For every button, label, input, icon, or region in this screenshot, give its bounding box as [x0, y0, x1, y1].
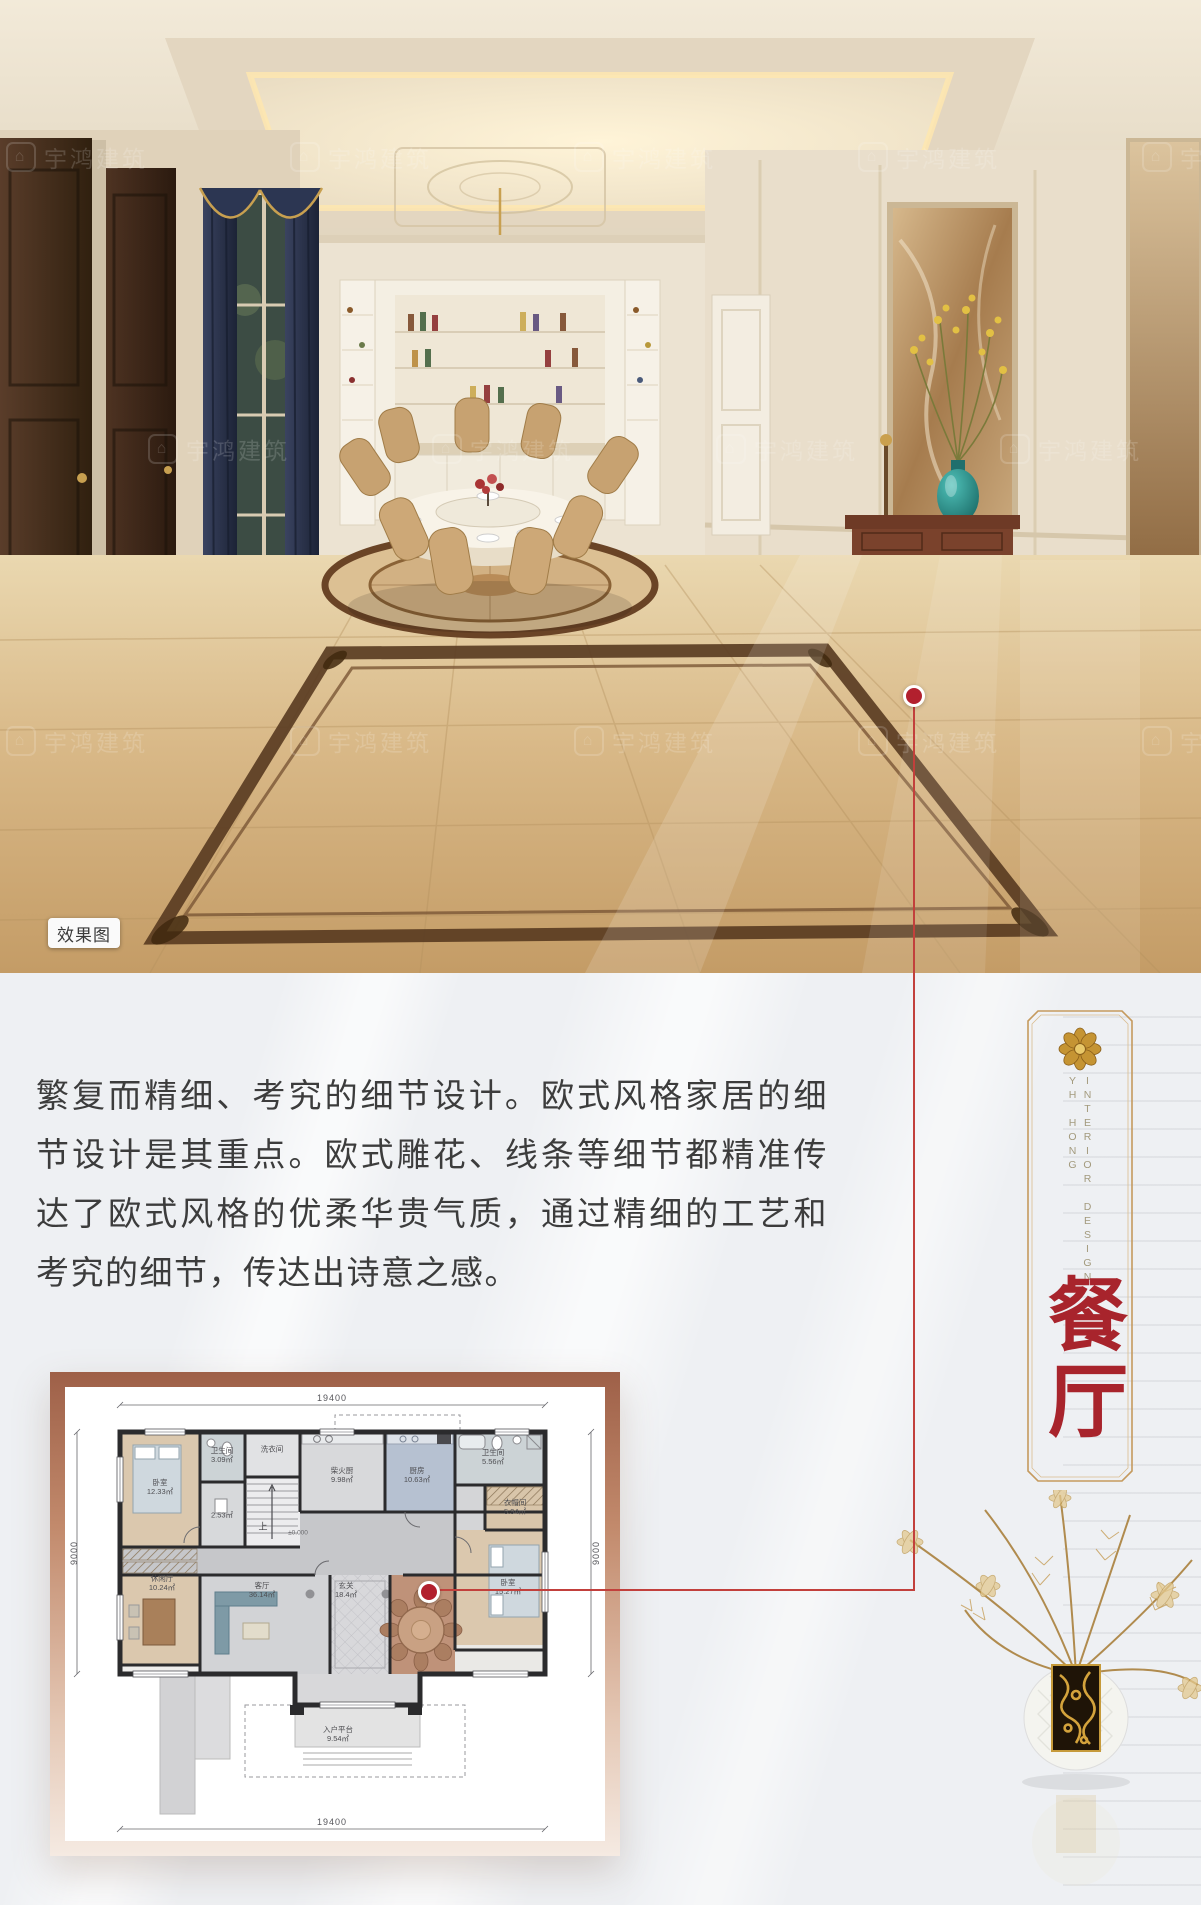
- poster-page: ⌂宇鸿建筑 ⌂宇鸿建筑 ⌂宇鸿建筑 ⌂宇鸿建筑 ⌂宇鸿建筑 ⌂宇鸿建筑 ⌂宇鸿建…: [0, 0, 1201, 1905]
- room-label-cloak: 衣帽间5.94㎡: [504, 1498, 527, 1516]
- dim-top: 19400: [317, 1393, 347, 1403]
- room-label-kitchen: 厨房10.63㎡: [404, 1466, 430, 1484]
- english-title: INTERIOR DESIGN: [1082, 1075, 1094, 1285]
- gold-blossoms: [897, 1490, 1201, 1701]
- marble-side-wall: [1128, 140, 1201, 570]
- room-label-bedroom-r: 卧室15.27㎡: [495, 1578, 521, 1596]
- vase: [1022, 1665, 1130, 1886]
- room-label-wood-kitchen: 柴火厨9.98㎡: [331, 1466, 354, 1484]
- room-label-foyer: 玄关18.4㎡: [335, 1581, 357, 1599]
- room-label-laundry: 洗衣间: [261, 1445, 284, 1454]
- description-paragraph: 繁复而精细、考究的细节设计。欧式风格家居的细节设计是其重点。欧式雕花、线条等细节…: [36, 1066, 828, 1302]
- render-badge: 效果图: [48, 918, 120, 948]
- room-label-bath-tr: 卫生间5.56㎡: [482, 1448, 505, 1466]
- stair-label: 上: [258, 1520, 267, 1533]
- dim-bottom: 19400: [317, 1817, 347, 1827]
- plan-marker-dot: [418, 1581, 440, 1603]
- connector-line-vertical: [913, 703, 915, 1591]
- room-label-store: 2.53㎡: [211, 1511, 233, 1520]
- floor-plan-svg: [65, 1387, 605, 1841]
- room-label-living: 客厅36.14㎡: [249, 1581, 275, 1599]
- room-title: 餐厅: [1040, 1273, 1120, 1445]
- branches: [910, 1495, 1198, 1685]
- room-label-bath-tl: 卫生间3.09㎡: [211, 1446, 234, 1464]
- floor-plan-drawing: 19400 19400 9000 9000 卧室12.33㎡ 卫生间3.09㎡ …: [65, 1387, 605, 1841]
- glass-display-right: [625, 280, 660, 525]
- side-door: [712, 295, 770, 535]
- gold-flower-icon: [1058, 1027, 1102, 1071]
- level-label: ±0.000: [288, 1530, 308, 1537]
- english-subtitle: YH HONG: [1067, 1075, 1079, 1285]
- connector-line-horizontal: [429, 1589, 915, 1591]
- room-label-leisure: 休闲厅10.24㎡: [149, 1574, 175, 1592]
- floor-plan-figure: 19400 19400 9000 9000 卧室12.33㎡ 卫生间3.09㎡ …: [50, 1372, 620, 1856]
- dim-right: 9000: [591, 1541, 601, 1565]
- dim-left: 9000: [69, 1541, 79, 1565]
- side-title-panel: INTERIOR DESIGN YH HONG 餐厅: [1022, 1005, 1138, 1487]
- room-label-bedroom-tl: 卧室12.33㎡: [147, 1478, 173, 1496]
- dining-room-scene: [0, 0, 1201, 973]
- render-photo: ⌂宇鸿建筑 ⌂宇鸿建筑 ⌂宇鸿建筑 ⌂宇鸿建筑 ⌂宇鸿建筑 ⌂宇鸿建筑 ⌂宇鸿建…: [0, 0, 1201, 973]
- gold-flower-vase-decoration: [760, 1490, 1201, 1905]
- room-label-entry: 入户平台9.54㎡: [323, 1725, 353, 1743]
- photo-marker-dot: [903, 685, 925, 707]
- english-title-block: INTERIOR DESIGN YH HONG: [1064, 1075, 1097, 1285]
